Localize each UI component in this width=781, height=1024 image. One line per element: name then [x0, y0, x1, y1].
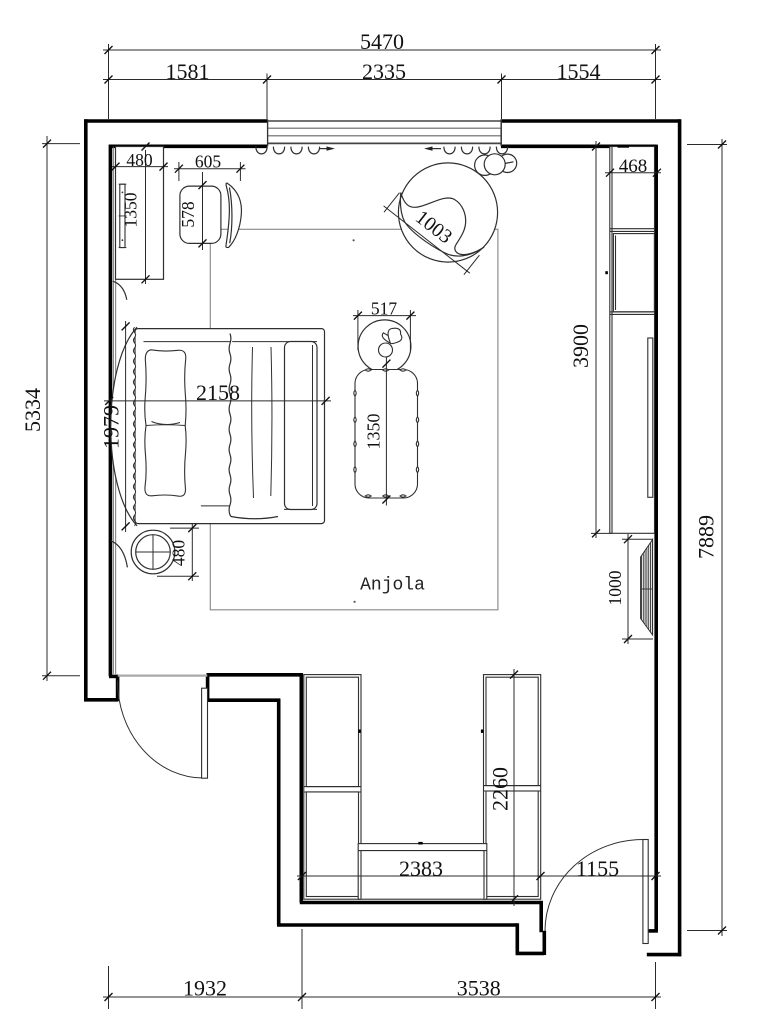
svg-text:5334: 5334 — [20, 388, 45, 432]
svg-text:480: 480 — [169, 540, 189, 567]
svg-text:1979: 1979 — [99, 405, 124, 449]
svg-text:2260: 2260 — [488, 767, 513, 811]
svg-text:7889: 7889 — [694, 515, 719, 559]
svg-text:517: 517 — [371, 298, 398, 318]
svg-text:3538: 3538 — [457, 976, 501, 1001]
svg-text:605: 605 — [195, 152, 222, 172]
svg-text:3900: 3900 — [568, 324, 593, 368]
svg-text:2335: 2335 — [362, 59, 406, 84]
svg-text:1581: 1581 — [166, 59, 210, 84]
svg-text:1350: 1350 — [121, 192, 141, 227]
svg-text:1932: 1932 — [183, 976, 227, 1001]
svg-text:578: 578 — [178, 201, 198, 228]
svg-text:468: 468 — [619, 156, 648, 177]
svg-text:480: 480 — [126, 150, 153, 170]
svg-text:2383: 2383 — [399, 856, 443, 881]
svg-text:1350: 1350 — [364, 414, 384, 450]
svg-text:Anjola: Anjola — [360, 576, 425, 596]
svg-text:1554: 1554 — [557, 59, 601, 84]
svg-text:5470: 5470 — [360, 29, 404, 54]
svg-text:1155: 1155 — [576, 856, 619, 881]
svg-text:2158: 2158 — [196, 380, 240, 405]
svg-text:1000: 1000 — [605, 570, 625, 605]
